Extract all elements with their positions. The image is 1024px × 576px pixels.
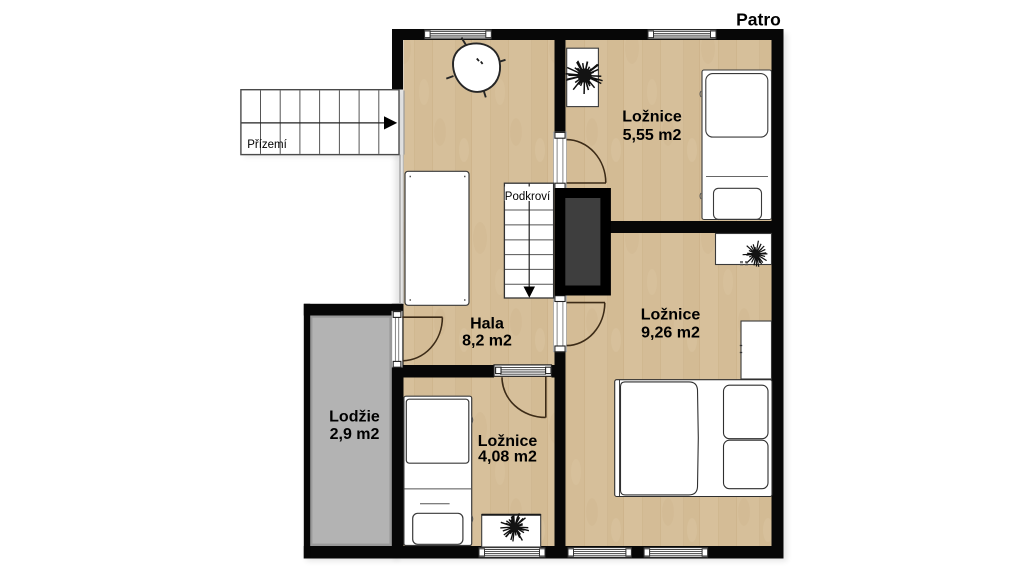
svg-text:Ložnice: Ložnice: [622, 109, 682, 126]
svg-text:Ložnice: Ložnice: [641, 307, 701, 324]
svg-text:Přízemí: Přízemí: [247, 139, 287, 151]
svg-text:8,2 m2: 8,2 m2: [462, 333, 512, 350]
svg-text:Lodžie: Lodžie: [329, 409, 380, 426]
svg-text:Podkroví: Podkroví: [505, 191, 551, 203]
svg-text:Patro: Patro: [736, 9, 781, 29]
svg-text:9,26 m2: 9,26 m2: [641, 325, 700, 342]
svg-text:Hala: Hala: [470, 316, 504, 333]
svg-text:4,08 m2: 4,08 m2: [478, 449, 537, 466]
svg-text:5,55 m2: 5,55 m2: [623, 127, 682, 144]
svg-text:Ložnice: Ložnice: [478, 433, 538, 450]
svg-text:2,9 m2: 2,9 m2: [330, 426, 380, 443]
